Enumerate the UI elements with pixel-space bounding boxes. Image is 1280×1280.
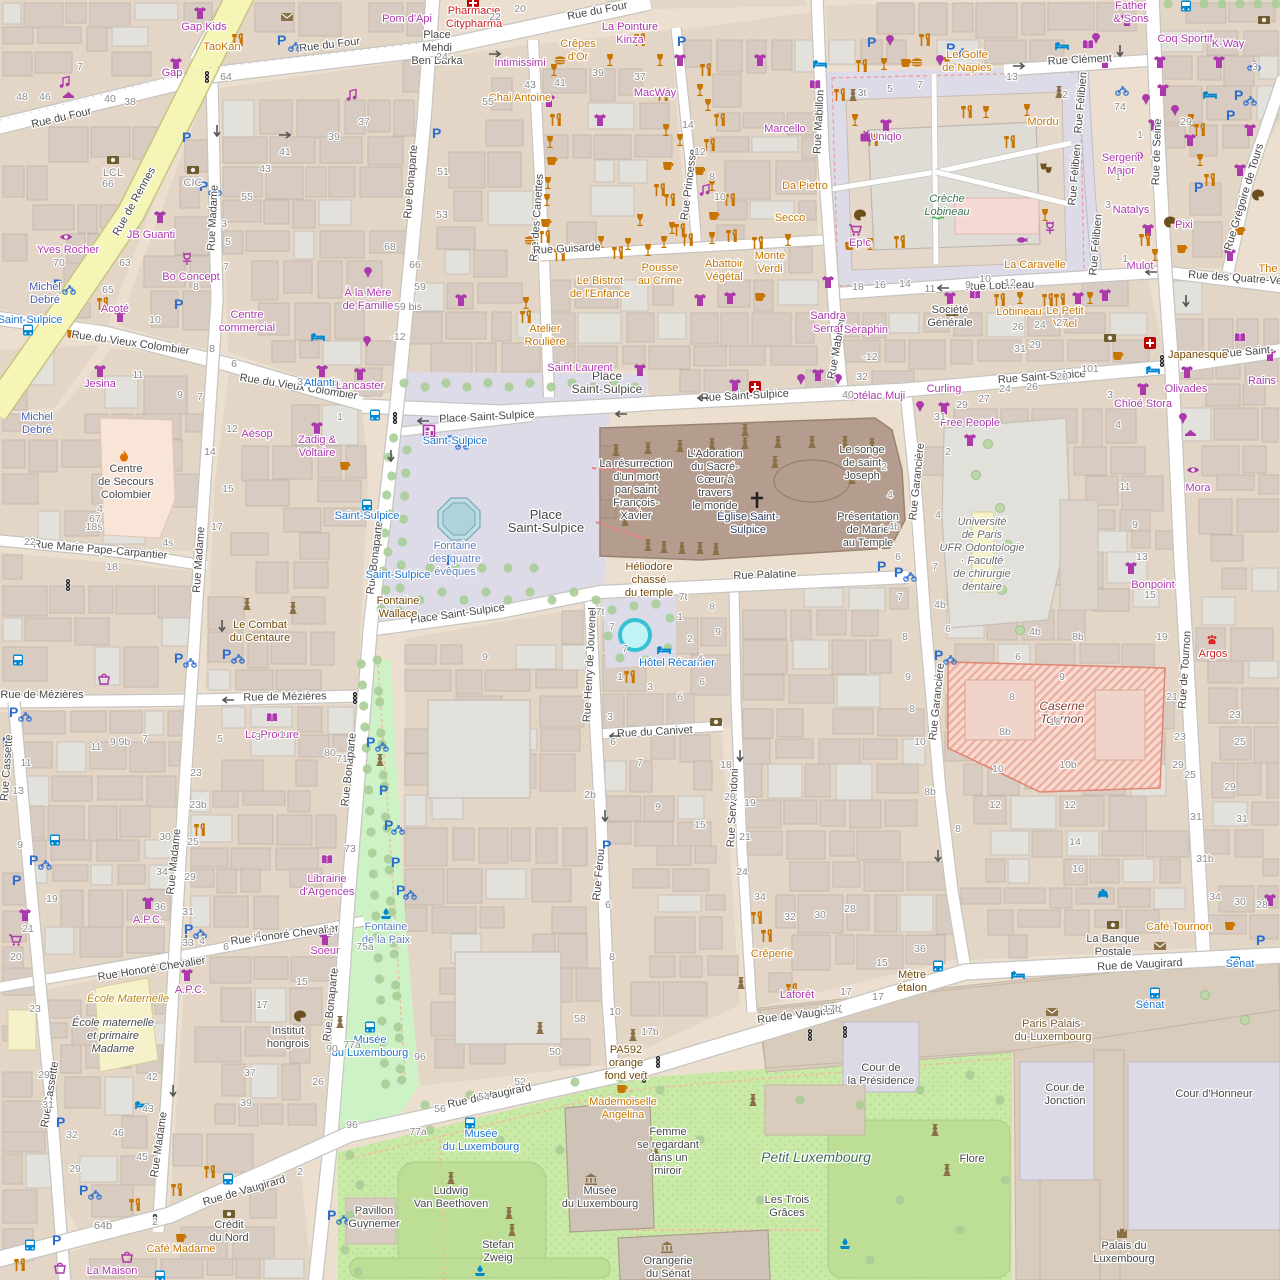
svg-text:6: 6 (223, 941, 229, 953)
svg-text:17b: 17b (823, 1003, 841, 1015)
svg-text:JB Guanti: JB Guanti (127, 229, 175, 241)
svg-text:Guynemer: Guynemer (348, 1218, 400, 1230)
svg-text:Free People: Free People (940, 417, 1000, 429)
svg-text:MacWay: MacWay (634, 87, 677, 99)
svg-text:Le Combat: Le Combat (233, 619, 287, 631)
svg-text:École maternelle: École maternelle (72, 1016, 154, 1029)
svg-text:27: 27 (978, 393, 990, 405)
svg-text:Pixi: Pixi (1175, 219, 1193, 231)
svg-text:La résurrection: La résurrection (599, 458, 672, 470)
svg-text:26: 26 (1012, 321, 1024, 333)
svg-text:Caserne: Caserne (1039, 699, 1085, 713)
svg-text:19: 19 (46, 893, 58, 905)
svg-text:Mora: Mora (1185, 482, 1211, 494)
svg-text:1: 1 (1122, 253, 1128, 265)
svg-text:3: 3 (1252, 61, 1258, 73)
svg-text:31: 31 (1190, 811, 1202, 823)
svg-text:30: 30 (1234, 896, 1246, 908)
svg-text:Lancaster: Lancaster (336, 380, 385, 392)
svg-text:orange: orange (609, 1057, 643, 1069)
svg-text:12: 12 (226, 423, 238, 435)
svg-text:Saint-Sulpice: Saint-Sulpice (423, 435, 488, 447)
svg-text:2: 2 (1062, 89, 1068, 101)
svg-text:17: 17 (256, 999, 268, 1011)
svg-text:Bo Concept: Bo Concept (162, 271, 219, 283)
svg-text:26: 26 (1026, 381, 1038, 393)
svg-text:Sénat: Sénat (1226, 958, 1255, 970)
svg-text:7: 7 (77, 61, 83, 73)
svg-text:de Marie: de Marie (847, 524, 890, 536)
svg-text:10: 10 (979, 273, 991, 285)
svg-text:École Maternelle: École Maternelle (87, 992, 169, 1005)
svg-text:7: 7 (197, 391, 203, 403)
svg-text:Hôtel Récamier: Hôtel Récamier (639, 657, 715, 669)
svg-text:7t: 7t (596, 606, 605, 618)
svg-text:Mordu: Mordu (1027, 116, 1058, 128)
svg-text:TaoKan: TaoKan (203, 41, 240, 53)
svg-text:24: 24 (1034, 319, 1046, 331)
svg-text:15: 15 (694, 819, 706, 831)
svg-text:36: 36 (154, 901, 166, 913)
svg-text:Fontaine: Fontaine (377, 595, 420, 607)
svg-text:96: 96 (346, 1119, 358, 1131)
svg-text:25: 25 (1234, 736, 1246, 748)
svg-text:Café Madame: Café Madame (146, 1243, 215, 1255)
svg-text:Coq Sportif: Coq Sportif (1157, 33, 1213, 45)
svg-text:du Sénat: du Sénat (646, 1268, 690, 1280)
svg-text:commercial: commercial (219, 322, 275, 334)
svg-text:Orangerie: Orangerie (644, 1255, 693, 1267)
svg-text:32: 32 (66, 1129, 78, 1141)
svg-text:Monte: Monte (755, 250, 786, 262)
svg-text:7: 7 (622, 643, 628, 655)
svg-text:40: 40 (842, 389, 854, 401)
svg-text:d'Argences: d'Argences (300, 886, 355, 898)
svg-text:Tournon: Tournon (1040, 712, 1084, 726)
svg-text:Zadig &: Zadig & (298, 434, 337, 446)
svg-text:hongrois: hongrois (267, 1038, 310, 1050)
svg-text:29: 29 (1029, 339, 1041, 351)
svg-text:1: 1 (1137, 129, 1143, 141)
svg-text:12: 12 (989, 799, 1001, 811)
svg-text:du Luxembourg: du Luxembourg (562, 1198, 638, 1210)
svg-text:70: 70 (53, 257, 65, 269)
svg-text:A.P.C.: A.P.C. (175, 984, 205, 996)
svg-text:12: 12 (694, 146, 706, 158)
svg-text:8: 8 (1009, 691, 1015, 703)
svg-text:Le Petit: Le Petit (1046, 305, 1083, 317)
svg-text:63: 63 (119, 257, 131, 269)
svg-text:41: 41 (279, 146, 291, 158)
svg-text:24: 24 (436, 51, 448, 63)
svg-text:50: 50 (549, 1046, 561, 1058)
svg-text:Jonction: Jonction (1045, 1095, 1086, 1107)
svg-text:Olivades: Olivades (1165, 383, 1208, 395)
svg-text:48: 48 (16, 91, 28, 103)
svg-text:Séraphin: Séraphin (844, 324, 888, 336)
svg-text:du temple: du temple (625, 587, 673, 599)
svg-text:Da Pietro: Da Pietro (782, 180, 828, 192)
svg-text:Xavier: Xavier (620, 510, 652, 522)
svg-text:Rains: Rains (1248, 375, 1277, 387)
svg-text:39: 39 (328, 131, 340, 143)
svg-text:39: 39 (240, 1097, 252, 1109)
svg-text:La Maison: La Maison (87, 1265, 138, 1277)
svg-text:Soeur: Soeur (310, 945, 340, 957)
svg-text:4: 4 (887, 489, 893, 501)
svg-text:9: 9 (17, 839, 23, 851)
svg-text:Petit Luxembourg: Petit Luxembourg (761, 1149, 871, 1165)
svg-text:Zweig: Zweig (483, 1252, 512, 1264)
svg-text:Pavillon: Pavillon (355, 1205, 394, 1217)
svg-text:45: 45 (136, 1151, 148, 1163)
svg-text:5: 5 (887, 83, 893, 95)
svg-text:Fontaine: Fontaine (434, 540, 477, 552)
svg-text:10: 10 (914, 736, 926, 748)
svg-text:Colombier: Colombier (101, 489, 151, 501)
svg-text:À la Mère: À la Mère (344, 286, 391, 299)
svg-text:Wallace: Wallace (379, 608, 418, 620)
svg-text:Les Trois: Les Trois (765, 1194, 810, 1206)
svg-text:13: 13 (1006, 71, 1018, 83)
svg-text:55: 55 (241, 191, 253, 203)
svg-text:14: 14 (204, 446, 216, 458)
svg-text:7: 7 (897, 591, 903, 603)
svg-text:4s: 4s (162, 537, 173, 549)
svg-text:Église Saint-: Église Saint- (717, 510, 779, 523)
svg-text:2: 2 (687, 633, 693, 645)
svg-text:Atelier: Atelier (529, 323, 561, 335)
svg-text:La Procure: La Procure (245, 729, 299, 741)
svg-text:2: 2 (881, 461, 887, 473)
svg-text:39: 39 (592, 67, 604, 79)
svg-text:L'Adoration: L'Adoration (687, 448, 742, 460)
svg-text:Sergent: Sergent (1102, 152, 1141, 164)
svg-text:de Naples: de Naples (942, 62, 992, 74)
svg-text:59: 59 (414, 281, 426, 293)
svg-text:20: 20 (514, 3, 526, 15)
svg-text:Palais du: Palais du (1101, 1240, 1146, 1252)
svg-text:8: 8 (609, 951, 615, 963)
svg-text:Joseph: Joseph (844, 470, 879, 482)
svg-text:65: 65 (102, 284, 114, 296)
svg-text:Saint-Sulpice: Saint-Sulpice (366, 569, 431, 581)
svg-text:10: 10 (992, 763, 1004, 775)
svg-text:dentaire: dentaire (962, 581, 1002, 593)
svg-text:Secco: Secco (775, 212, 806, 224)
svg-text:Curling: Curling (927, 383, 962, 395)
svg-text:du Sacré-: du Sacré- (691, 461, 739, 473)
svg-text:de Famille: de Famille (343, 300, 394, 312)
svg-text:59 bis: 59 bis (394, 301, 422, 313)
svg-text:23: 23 (1174, 731, 1186, 743)
svg-text:23: 23 (29, 1003, 41, 1015)
svg-text:Société: Société (932, 304, 969, 316)
svg-text:The: The (1259, 263, 1278, 275)
svg-text:52: 52 (514, 1076, 526, 1088)
svg-text:CIC: CIC (184, 177, 203, 189)
svg-text:4b: 4b (888, 521, 900, 533)
svg-text:32: 32 (784, 911, 796, 923)
svg-text:2: 2 (945, 446, 951, 458)
svg-text:101: 101 (1081, 363, 1099, 375)
svg-text:90: 90 (326, 1043, 338, 1055)
svg-text:8b: 8b (924, 786, 936, 798)
svg-text:54: 54 (478, 1091, 490, 1103)
svg-text:La Caravelle: La Caravelle (1004, 259, 1066, 271)
svg-text:26: 26 (312, 1076, 324, 1088)
svg-text:d'Or: d'Or (568, 51, 589, 63)
svg-text:1: 1 (279, 729, 285, 741)
svg-text:6: 6 (1015, 651, 1021, 663)
svg-text:Debré: Debré (30, 294, 60, 306)
svg-text:4: 4 (1115, 419, 1121, 431)
svg-text:15: 15 (222, 483, 234, 495)
svg-text:Van Beethoven: Van Beethoven (414, 1198, 488, 1210)
svg-text:56: 56 (434, 1103, 446, 1115)
svg-text:11: 11 (925, 283, 936, 295)
svg-text:20: 20 (1056, 371, 1068, 383)
svg-text:Saint-Sulpice: Saint-Sulpice (508, 520, 585, 535)
svg-text:43: 43 (259, 163, 271, 175)
svg-text:23: 23 (1229, 709, 1241, 721)
svg-text:Serraf: Serraf (813, 323, 844, 335)
svg-text:Crêperie: Crêperie (751, 948, 793, 960)
svg-text:24: 24 (736, 866, 748, 878)
svg-text:Pom d'Api: Pom d'Api (382, 13, 432, 25)
svg-text:Le songe: Le songe (839, 444, 884, 456)
svg-text:A.P.C.: A.P.C. (133, 914, 163, 926)
svg-text:1: 1 (1115, 171, 1121, 183)
svg-text:17: 17 (840, 986, 852, 998)
svg-text:Femme: Femme (649, 1126, 686, 1138)
svg-text:9: 9 (482, 651, 488, 663)
svg-text:9 9b: 9 9b (110, 736, 131, 748)
svg-text:17: 17 (872, 991, 884, 1003)
svg-text:Abattoir: Abattoir (705, 258, 743, 270)
svg-text:Debré: Debré (22, 424, 52, 436)
svg-text:16: 16 (874, 279, 886, 291)
svg-text:68: 68 (384, 241, 396, 253)
svg-text:Flore: Flore (959, 1153, 984, 1165)
svg-text:Kinza: Kinza (616, 34, 644, 46)
svg-text:Aésop: Aésop (241, 428, 272, 440)
svg-text:37: 37 (244, 1067, 256, 1079)
svg-text:4: 4 (199, 935, 205, 947)
svg-text:10b: 10b (1059, 759, 1077, 771)
svg-text:Angelina: Angelina (602, 1109, 646, 1121)
svg-text:2b: 2b (584, 789, 596, 801)
svg-text:Place: Place (423, 29, 451, 41)
svg-text:7t: 7t (679, 591, 688, 603)
svg-text:34: 34 (1209, 891, 1221, 903)
svg-text:64: 64 (220, 71, 232, 83)
svg-text:12: 12 (1064, 799, 1076, 811)
svg-text:14: 14 (1069, 836, 1081, 848)
svg-text:66: 66 (102, 178, 114, 190)
svg-text:Stefan: Stefan (482, 1239, 514, 1251)
svg-text:La Pointure: La Pointure (602, 21, 658, 33)
svg-text:16: 16 (1072, 863, 1084, 875)
svg-text:9: 9 (655, 801, 661, 813)
svg-text:10: 10 (609, 1006, 621, 1018)
svg-text:13: 13 (1136, 551, 1148, 563)
svg-text:7: 7 (223, 261, 229, 273)
svg-text:7: 7 (142, 733, 148, 745)
svg-text:3: 3 (221, 218, 227, 230)
svg-text:Centre: Centre (109, 463, 142, 475)
svg-text:chassé: chassé (632, 574, 667, 586)
svg-text:6: 6 (895, 551, 901, 563)
svg-text:Acoté: Acoté (101, 303, 129, 315)
svg-text:9: 9 (177, 389, 183, 401)
svg-text:miroir: miroir (654, 1165, 682, 1177)
svg-text:29: 29 (69, 1163, 81, 1175)
svg-text:14: 14 (682, 119, 694, 131)
svg-text:32: 32 (856, 371, 868, 383)
svg-text:Générale: Générale (927, 317, 972, 329)
svg-text:6: 6 (605, 899, 611, 911)
svg-text:31: 31 (934, 411, 946, 423)
svg-text:7: 7 (609, 621, 615, 633)
svg-text:41: 41 (554, 77, 566, 89)
svg-text:1: 1 (677, 611, 683, 623)
svg-text:8: 8 (709, 171, 715, 183)
svg-text:4b: 4b (1029, 626, 1041, 638)
svg-text:Mademoiselle: Mademoiselle (589, 1096, 657, 1108)
svg-text:6: 6 (231, 358, 237, 370)
svg-text:43: 43 (142, 1103, 154, 1115)
svg-text:4: 4 (255, 929, 261, 941)
svg-text:29: 29 (1224, 781, 1236, 793)
svg-text:28: 28 (1256, 899, 1268, 911)
svg-text:33: 33 (182, 937, 194, 949)
svg-text:11: 11 (133, 369, 144, 381)
svg-text:Chloé Stora: Chloé Stora (1114, 398, 1173, 410)
svg-text:-12: -12 (862, 351, 877, 363)
svg-text:37: 37 (358, 116, 370, 128)
svg-text:Rue de Seine: Rue de Seine (1150, 118, 1164, 185)
svg-text:29: 29 (956, 399, 968, 411)
svg-text:25: 25 (1184, 769, 1196, 781)
svg-text:Lobineau: Lobineau (924, 206, 969, 218)
svg-text:43: 43 (524, 79, 536, 91)
svg-text:Intimissimi: Intimissimi (494, 57, 545, 69)
svg-text:24: 24 (999, 383, 1011, 395)
svg-text:Café Tournon: Café Tournon (1146, 921, 1212, 933)
svg-text:de chirurgie: de chirurgie (953, 568, 1010, 580)
svg-text:6: 6 (677, 691, 683, 703)
svg-text:d'un mort: d'un mort (613, 471, 659, 483)
svg-text:Major: Major (1107, 165, 1135, 177)
svg-text:Sandra: Sandra (810, 310, 846, 322)
svg-text:Luxembourg: Luxembourg (1093, 1253, 1154, 1265)
svg-text:Mètre: Mètre (898, 969, 926, 981)
svg-text:Le Bistrot: Le Bistrot (577, 275, 623, 287)
svg-text:Crèche: Crèche (929, 193, 964, 205)
svg-text:17b: 17b (641, 1026, 659, 1038)
svg-text:34: 34 (156, 866, 168, 878)
svg-text:20: 20 (10, 951, 22, 963)
svg-text:77a: 77a (409, 1126, 427, 1138)
svg-text:4: 4 (935, 509, 941, 521)
svg-text:Yves Rocher: Yves Rocher (37, 244, 100, 256)
svg-text:8b: 8b (1072, 631, 1084, 643)
svg-text:6: 6 (699, 676, 705, 688)
svg-text:23b: 23b (189, 799, 207, 811)
svg-text:& Sons: & Sons (1113, 13, 1149, 25)
svg-text:Gap Kids: Gap Kids (181, 21, 227, 33)
svg-text:55: 55 (482, 96, 494, 108)
svg-text:Rue Lobineau: Rue Lobineau (965, 279, 1034, 293)
svg-text:15: 15 (1144, 589, 1156, 601)
svg-text:58: 58 (574, 1013, 586, 1025)
svg-text:12: 12 (1004, 277, 1016, 289)
svg-text:6: 6 (945, 623, 951, 635)
svg-text:8: 8 (709, 601, 715, 613)
svg-text:29: 29 (1172, 759, 1184, 771)
svg-text:22: 22 (24, 536, 36, 548)
svg-text:Michel: Michel (29, 281, 61, 293)
svg-text:73: 73 (344, 843, 356, 855)
svg-text:5: 5 (225, 236, 231, 248)
svg-text:Madame: Madame (92, 1043, 135, 1055)
svg-text:Ludwig: Ludwig (434, 1185, 469, 1197)
svg-text:96: 96 (414, 1051, 426, 1063)
svg-text:29: 29 (1180, 116, 1192, 128)
svg-text:31b: 31b (1196, 853, 1214, 865)
svg-text:8: 8 (955, 823, 961, 835)
svg-text:UFR Odontologie: UFR Odontologie (940, 542, 1025, 554)
svg-text:1: 1 (337, 411, 343, 423)
svg-text:29: 29 (38, 1069, 50, 1081)
svg-text:Université: Université (958, 516, 1007, 528)
svg-text:38: 38 (124, 96, 136, 108)
svg-text:de saint: de saint (843, 457, 882, 469)
svg-text:31: 31 (182, 906, 194, 918)
svg-text:28: 28 (844, 903, 856, 915)
svg-text:66: 66 (409, 259, 421, 271)
svg-text:3t: 3t (858, 87, 867, 99)
svg-text:La Banque: La Banque (1086, 933, 1139, 945)
svg-text:Postale: Postale (1095, 946, 1132, 958)
svg-text:Laforêt: Laforêt (780, 989, 814, 1001)
svg-text:4: 4 (697, 653, 703, 665)
svg-text:30: 30 (814, 909, 826, 921)
svg-text:19: 19 (744, 797, 756, 809)
svg-text:Institut: Institut (272, 1025, 304, 1037)
svg-text:Lobineau: Lobineau (996, 306, 1041, 318)
svg-text:9: 9 (965, 279, 971, 291)
svg-text:Japanesque: Japanesque (1168, 349, 1228, 361)
svg-text:31: 31 (1236, 813, 1248, 825)
svg-text:8: 8 (209, 343, 215, 355)
svg-text:François-: François- (613, 497, 659, 509)
svg-text:la Présidence: la Présidence (848, 1075, 915, 1087)
svg-text:Jesina: Jesina (84, 378, 117, 390)
svg-text:7: 7 (637, 757, 643, 769)
svg-text:21: 21 (22, 923, 34, 935)
svg-text:Le Golfe: Le Golfe (946, 49, 988, 61)
svg-text:Cour de: Cour de (1045, 1082, 1084, 1094)
svg-text:46: 46 (39, 91, 51, 103)
svg-text:Végétal: Végétal (705, 271, 742, 283)
svg-text:PA592: PA592 (610, 1044, 642, 1056)
svg-text:-12: -12 (390, 331, 405, 343)
svg-text:3: 3 (297, 376, 303, 388)
svg-text:11: 11 (21, 757, 32, 769)
svg-text:15: 15 (876, 957, 888, 969)
